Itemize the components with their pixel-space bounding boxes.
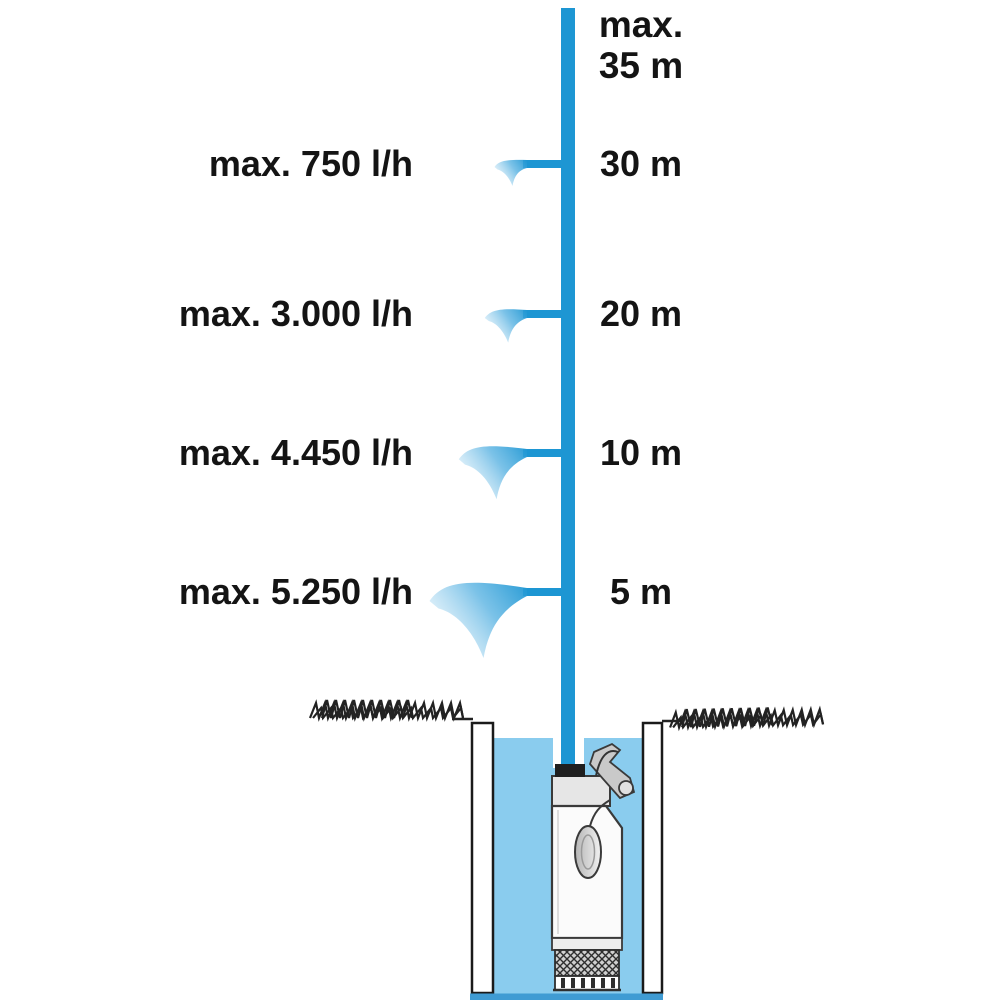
flow-label-20m: max. 3.000 l/h	[140, 290, 413, 338]
grass-left	[310, 700, 463, 718]
head-label-5m: 5 m	[591, 568, 691, 616]
well-bottom	[470, 994, 663, 1000]
outlet-tick-20m	[523, 310, 562, 318]
riser-pipe	[561, 8, 575, 766]
pump-lower-band	[552, 938, 622, 950]
max-head-label: max. 35 m	[591, 4, 691, 86]
pump-top-housing	[552, 776, 610, 806]
water-spray-5m	[430, 583, 528, 658]
water-spray-20m	[485, 309, 527, 342]
head-label-30m: 30 m	[591, 140, 691, 188]
pump-feet	[553, 976, 621, 990]
grass-right	[670, 706, 823, 727]
outlet-tick-10m	[523, 449, 562, 457]
outlet-tick-5m	[523, 588, 562, 596]
outlet-tick-30m	[523, 160, 562, 168]
water-spray-10m	[459, 446, 527, 499]
head-label-20m: 20 m	[591, 290, 691, 338]
flow-label-5m: max. 5.250 l/h	[140, 568, 413, 616]
pump-pipe-connector	[555, 764, 585, 777]
head-label-10m: 10 m	[591, 429, 691, 477]
flow-label-10m: max. 4.450 l/h	[140, 429, 413, 477]
pump-float-pivot	[619, 781, 633, 795]
pump-performance-diagram: max. 35 m max. 750 l/h 30 m max. 3.000 l…	[0, 0, 1000, 1000]
max-head-value: 35 m	[591, 45, 691, 86]
flow-label-30m: max. 750 l/h	[140, 140, 413, 188]
water-spray-30m	[495, 160, 528, 186]
well-wall-left	[472, 723, 493, 993]
max-head-prefix: max.	[591, 4, 691, 45]
well-wall-right	[643, 723, 662, 993]
pump-strainer	[555, 950, 619, 976]
pump-float-switch	[575, 826, 601, 878]
